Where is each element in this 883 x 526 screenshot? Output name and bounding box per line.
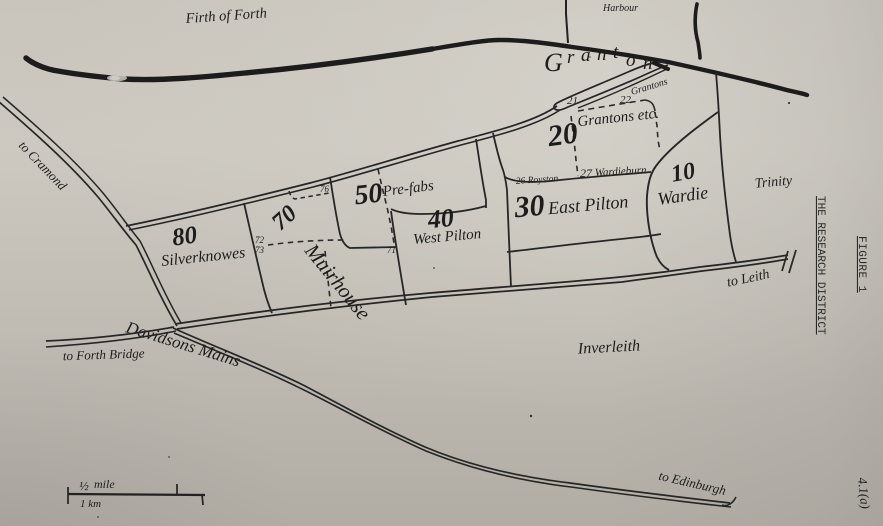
svg-text:30: 30: [512, 189, 546, 225]
svg-text:80: 80: [170, 221, 199, 251]
svg-text:1 km: 1 km: [80, 498, 101, 510]
svg-text:G: G: [544, 48, 563, 77]
svg-text:20: 20: [545, 116, 580, 153]
svg-text:to Forth Bridge: to Forth Bridge: [63, 345, 145, 363]
svg-text:½: ½: [79, 478, 89, 493]
svg-text:71: 71: [387, 245, 396, 255]
svg-text:50: 50: [353, 178, 384, 212]
svg-text:o: o: [626, 50, 636, 71]
svg-text:Inverleith: Inverleith: [576, 337, 640, 357]
svg-text:a: a: [581, 45, 591, 66]
svg-text:72: 72: [255, 235, 265, 245]
svg-text:n: n: [597, 44, 607, 65]
svg-text:t: t: [613, 42, 619, 63]
svg-text:Harbour: Harbour: [602, 3, 638, 14]
svg-text:FIGURE 1: FIGURE 1: [855, 236, 867, 293]
svg-text:73: 73: [255, 245, 265, 255]
svg-text:21: 21: [567, 95, 578, 107]
svg-text:THE RESEARCH DISTRICT: THE RESEARCH DISTRICT: [814, 196, 826, 335]
svg-text:r: r: [567, 47, 575, 68]
svg-text:mile: mile: [94, 477, 115, 491]
